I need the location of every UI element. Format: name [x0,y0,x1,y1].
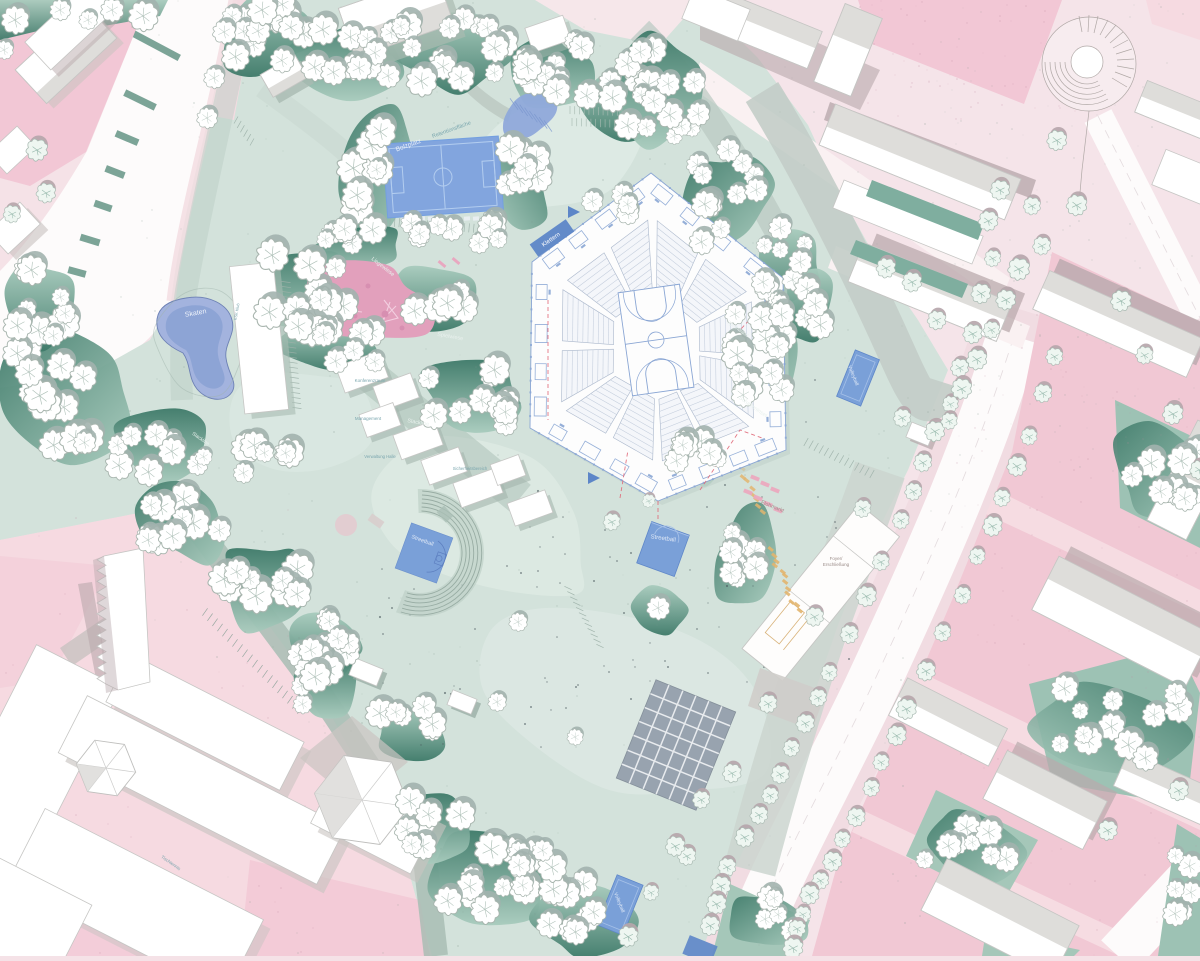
svg-text:Erschließung: Erschließung [823,562,850,567]
svg-text:Sicherheitsbereich: Sicherheitsbereich [453,466,488,471]
svg-text:Management: Management [355,416,382,421]
svg-text:Verwaltung Halle: Verwaltung Halle [364,454,396,459]
svg-text:Foyer/: Foyer/ [830,556,844,561]
svg-text:Konferenzraum: Konferenzraum [355,378,386,383]
